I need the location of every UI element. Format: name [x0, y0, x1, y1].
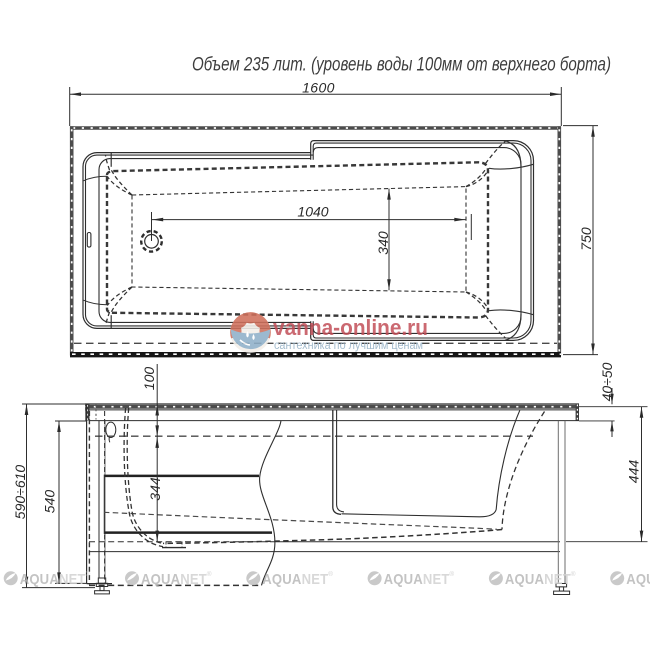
svg-text:444: 444: [626, 460, 642, 484]
svg-text:AQUANET: AQUANET: [505, 572, 571, 588]
svg-text:590÷610: 590÷610: [12, 465, 28, 520]
svg-text:сантехника по лучшим ценам: сантехника по лучшим ценам: [274, 338, 423, 352]
svg-text:®: ®: [207, 570, 212, 578]
svg-text:AQUANET: AQUANET: [20, 572, 86, 588]
svg-text:®: ®: [328, 570, 333, 578]
svg-text:1600: 1600: [302, 79, 335, 95]
svg-text:vanna-online.ru: vanna-online.ru: [273, 315, 428, 340]
svg-text:540: 540: [42, 490, 58, 514]
svg-text:1040: 1040: [297, 204, 328, 220]
svg-text:100: 100: [141, 367, 157, 391]
svg-text:AQUANET: AQUANET: [141, 572, 207, 588]
svg-text:®: ®: [86, 570, 91, 578]
svg-text:AQUANET: AQUANET: [384, 572, 450, 588]
svg-text:AQUANET: AQUANET: [626, 572, 650, 588]
svg-text:®: ®: [449, 570, 454, 578]
svg-text:®: ®: [571, 570, 576, 578]
svg-text:344: 344: [147, 477, 163, 501]
svg-text:Объем 235 лит. (уровень воды 1: Объем 235 лит. (уровень воды 100мм от ве…: [192, 54, 611, 75]
svg-text:AQUANET: AQUANET: [262, 572, 328, 588]
svg-text:750: 750: [578, 227, 594, 251]
